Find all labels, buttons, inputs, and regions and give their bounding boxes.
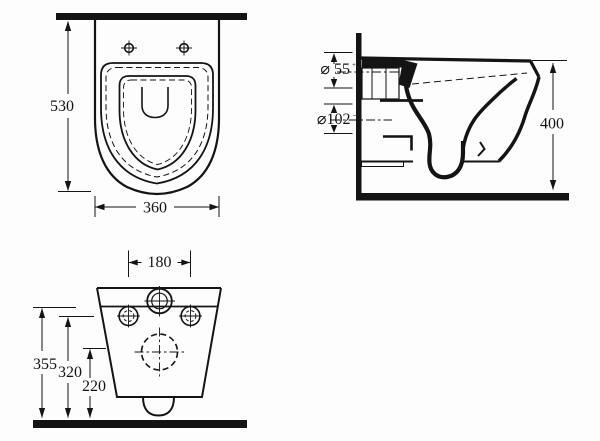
- rear-floor-line: [33, 420, 247, 428]
- dimension-530: 530: [50, 21, 91, 192]
- side-inner-ledge: [383, 137, 412, 151]
- side-inner-bowl-curve: [463, 79, 517, 150]
- rear-bolt-hole-left: [117, 305, 140, 328]
- dimension-320: 320: [58, 317, 94, 419]
- arrowhead-left: [95, 204, 105, 210]
- dim-label-320: 320: [58, 364, 82, 381]
- side-inlet-pipe: [362, 68, 399, 99]
- side-inlet-pipe-lines: [372, 68, 386, 99]
- side-view: ⌀ 55 +0/-1 ⌀102 -4 400: [317, 33, 569, 201]
- dim-label-220: 220: [82, 378, 106, 395]
- rear-view: 180 355 320 220: [33, 251, 247, 429]
- crosshair: [117, 305, 140, 328]
- arrowhead-up: [65, 317, 71, 327]
- plan-wall-bar: [56, 13, 247, 20]
- arrowhead-up: [39, 308, 45, 318]
- plan-bowl-outline: [120, 76, 196, 170]
- plan-flush-cutout: [142, 87, 168, 118]
- crosshair: [121, 41, 137, 56]
- dimension-360: 360: [95, 196, 219, 217]
- arrowhead-up: [87, 349, 93, 359]
- plan-view: 530 360: [50, 13, 247, 217]
- dim-label-inlet: ⌀ 55: [320, 61, 350, 78]
- arrowhead-up: [65, 21, 71, 31]
- dim-label-530: 530: [50, 98, 74, 115]
- side-step-notch: [478, 142, 485, 156]
- arrowhead-left: [129, 260, 138, 266]
- toilet-technical-drawing: 530 360 ⌀ 55 +0/: [0, 0, 600, 441]
- dimension-outlet-102: ⌀102 -4: [317, 104, 359, 134]
- dim-label-360: 360: [143, 200, 167, 217]
- dim-label-outlet: ⌀102: [317, 111, 351, 128]
- plan-mount-hole-left: [121, 41, 137, 56]
- arrowhead-down: [39, 408, 45, 418]
- arrowhead-down: [65, 181, 71, 191]
- arrowhead-down: [331, 79, 337, 88]
- crosshair: [145, 286, 176, 317]
- side-floor-line: [356, 193, 569, 201]
- rear-bottom-boss: [143, 397, 174, 416]
- rear-outlet-port: [135, 328, 185, 377]
- dim-label-400: 400: [540, 116, 564, 133]
- plan-seat-hidden-line: [106, 68, 208, 178]
- plan-seat-outline: [101, 63, 213, 184]
- dim-label-180: 180: [148, 254, 172, 271]
- arrowhead-right: [210, 204, 220, 210]
- plan-bowl-hidden-line: [124, 80, 192, 165]
- dim-label-inlet-tolerance: +0/-1: [352, 61, 368, 69]
- rear-inlet-port: [145, 286, 176, 317]
- arrowhead-down: [65, 408, 71, 418]
- arrowhead-up: [550, 63, 556, 73]
- rear-body-outline: [97, 288, 221, 397]
- plan-body-outline: [95, 20, 219, 194]
- dim-label-outlet-tolerance: -4: [353, 111, 359, 119]
- plan-mount-hole-right: [176, 41, 192, 56]
- dimension-180: 180: [129, 251, 191, 278]
- arrowhead-right: [181, 260, 190, 266]
- side-flush-channel-section: [362, 59, 403, 68]
- arrowhead-down: [87, 408, 93, 418]
- dimension-220: 220: [82, 349, 106, 419]
- dim-label-355: 355: [33, 356, 57, 373]
- rear-bolt-hole-right: [179, 305, 202, 328]
- crosshair: [176, 41, 192, 56]
- drawing-sheet: 530 360 ⌀ 55 +0/: [0, 0, 600, 441]
- crosshair: [179, 305, 202, 328]
- arrowhead-down: [550, 180, 556, 190]
